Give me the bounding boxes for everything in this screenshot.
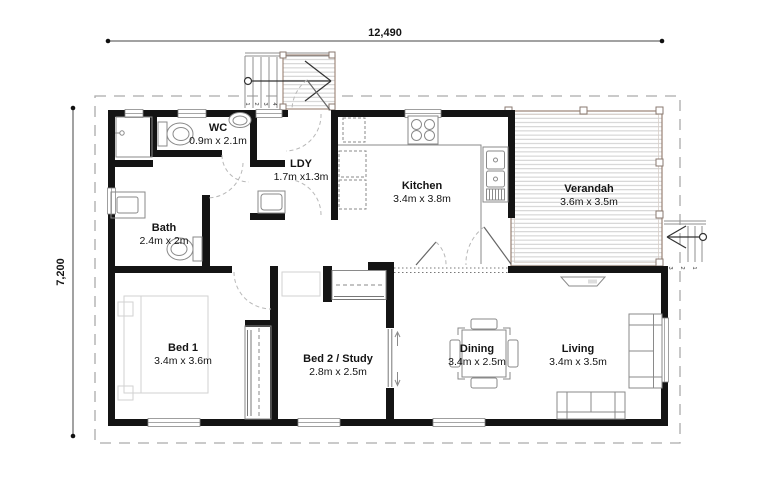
height-dimension-label: 7,200 — [55, 258, 67, 286]
room-name: Verandah — [564, 183, 614, 195]
pantry-cupboard — [339, 151, 366, 177]
room-size: 3.6m x 3.5m — [560, 196, 618, 208]
step-number: 1 — [244, 102, 250, 105]
wall-segment — [331, 110, 338, 220]
wall-segment — [323, 266, 332, 302]
verandah-door — [484, 227, 511, 264]
sink-icon — [483, 147, 508, 202]
room-size: 2.4m x 2m — [139, 235, 188, 247]
floor-plan-drawing: 12,490 7,200 1 2 3 4 — [0, 0, 768, 480]
shower-icon — [115, 117, 152, 157]
room-label-kitchen: Kitchen 3.4m x 3.8m — [393, 180, 451, 205]
ldy-door-swing — [286, 114, 321, 151]
verandah-door — [416, 242, 436, 265]
wall-segment — [250, 213, 285, 220]
deck-post — [329, 52, 335, 58]
deck-post — [656, 107, 663, 114]
sliding-door — [388, 329, 400, 387]
bedroom-fixtures — [118, 271, 400, 420]
wall-segment — [508, 266, 668, 273]
cooktop-icon — [408, 116, 438, 144]
vanity-icon — [111, 192, 145, 218]
fridge-space — [343, 118, 365, 142]
floor-plan-page: 12,490 7,200 1 2 3 4 — [0, 0, 768, 480]
bedside-table — [118, 302, 133, 316]
room-name: Kitchen — [402, 180, 443, 192]
room-size: 3.4m x 2.5m — [448, 356, 506, 368]
width-dimension-label: 12,490 — [368, 27, 402, 39]
ldy-door-swing — [286, 179, 321, 215]
wall-segment — [108, 266, 232, 273]
robe-icon — [245, 326, 271, 419]
step-number: 4 — [271, 102, 277, 105]
bath-door-swing — [207, 163, 243, 198]
deck-post — [280, 104, 286, 110]
deck-post — [580, 107, 587, 114]
step-number: 2 — [253, 102, 259, 105]
room-name: Bath — [152, 222, 177, 234]
room-label-bed2: Bed 2 / Study 2.8m x 2.5m — [303, 353, 374, 378]
step-number: 3 — [262, 102, 268, 105]
chair — [508, 340, 518, 367]
washer-icon — [258, 191, 285, 213]
room-label-bed1: Bed 1 3.4m x 3.6m — [154, 342, 212, 367]
entry-porch: 1 2 3 4 — [244, 52, 335, 110]
wall-segment — [386, 262, 394, 328]
desk — [282, 272, 320, 296]
deck-post — [280, 52, 286, 58]
step-number: 1 — [691, 266, 697, 269]
sofa-icon — [629, 314, 662, 388]
room-name: Bed 2 / Study — [303, 353, 374, 365]
wall-unit — [561, 277, 605, 286]
room-size: 1.7m x1.3m — [274, 171, 329, 183]
room-label-verandah: Verandah 3.6m x 3.5m — [560, 183, 618, 208]
pantry-cupboard — [339, 180, 366, 209]
wall-segment — [110, 160, 153, 167]
wall-segment — [250, 160, 285, 167]
room-label-bath: Bath 2.4m x 2m — [139, 222, 188, 247]
room-name: Living — [562, 343, 594, 355]
toilet-icon — [158, 122, 193, 146]
room-name: Bed 1 — [168, 342, 198, 354]
room-name: WC — [209, 122, 227, 134]
room-label-living: Living 3.4m x 3.5m — [549, 343, 607, 368]
chair — [471, 319, 497, 329]
wall-segment — [150, 150, 222, 157]
dimension-left: 7,200 — [55, 106, 75, 439]
room-name: Dining — [460, 343, 494, 355]
robe-icon — [332, 271, 386, 300]
room-size: 2.8m x 2.5m — [309, 366, 367, 378]
step-number: 2 — [679, 266, 685, 269]
wc-door-swing — [222, 155, 249, 182]
stairs-arrow-icon — [667, 226, 707, 248]
deck-post — [656, 159, 663, 166]
wall-segment — [386, 388, 394, 420]
wall-segment — [508, 110, 515, 218]
room-size: 3.4m x 3.8m — [393, 193, 451, 205]
room-size: 3.4m x 3.6m — [154, 355, 212, 367]
sofa-icon — [557, 392, 625, 419]
chair — [471, 378, 497, 388]
basin-icon — [229, 113, 251, 128]
dimension-top: 12,490 — [106, 27, 665, 43]
deck-post — [656, 259, 663, 266]
room-name: LDY — [290, 158, 313, 170]
bed1-door-swing — [234, 272, 271, 309]
deck-post — [656, 211, 663, 218]
verandah-steps: 3 2 1 — [664, 221, 707, 270]
wall-segment — [202, 195, 210, 268]
room-size: 3.4m x 3.5m — [549, 356, 607, 368]
room-size: 0.9m x 2.1m — [189, 135, 247, 147]
